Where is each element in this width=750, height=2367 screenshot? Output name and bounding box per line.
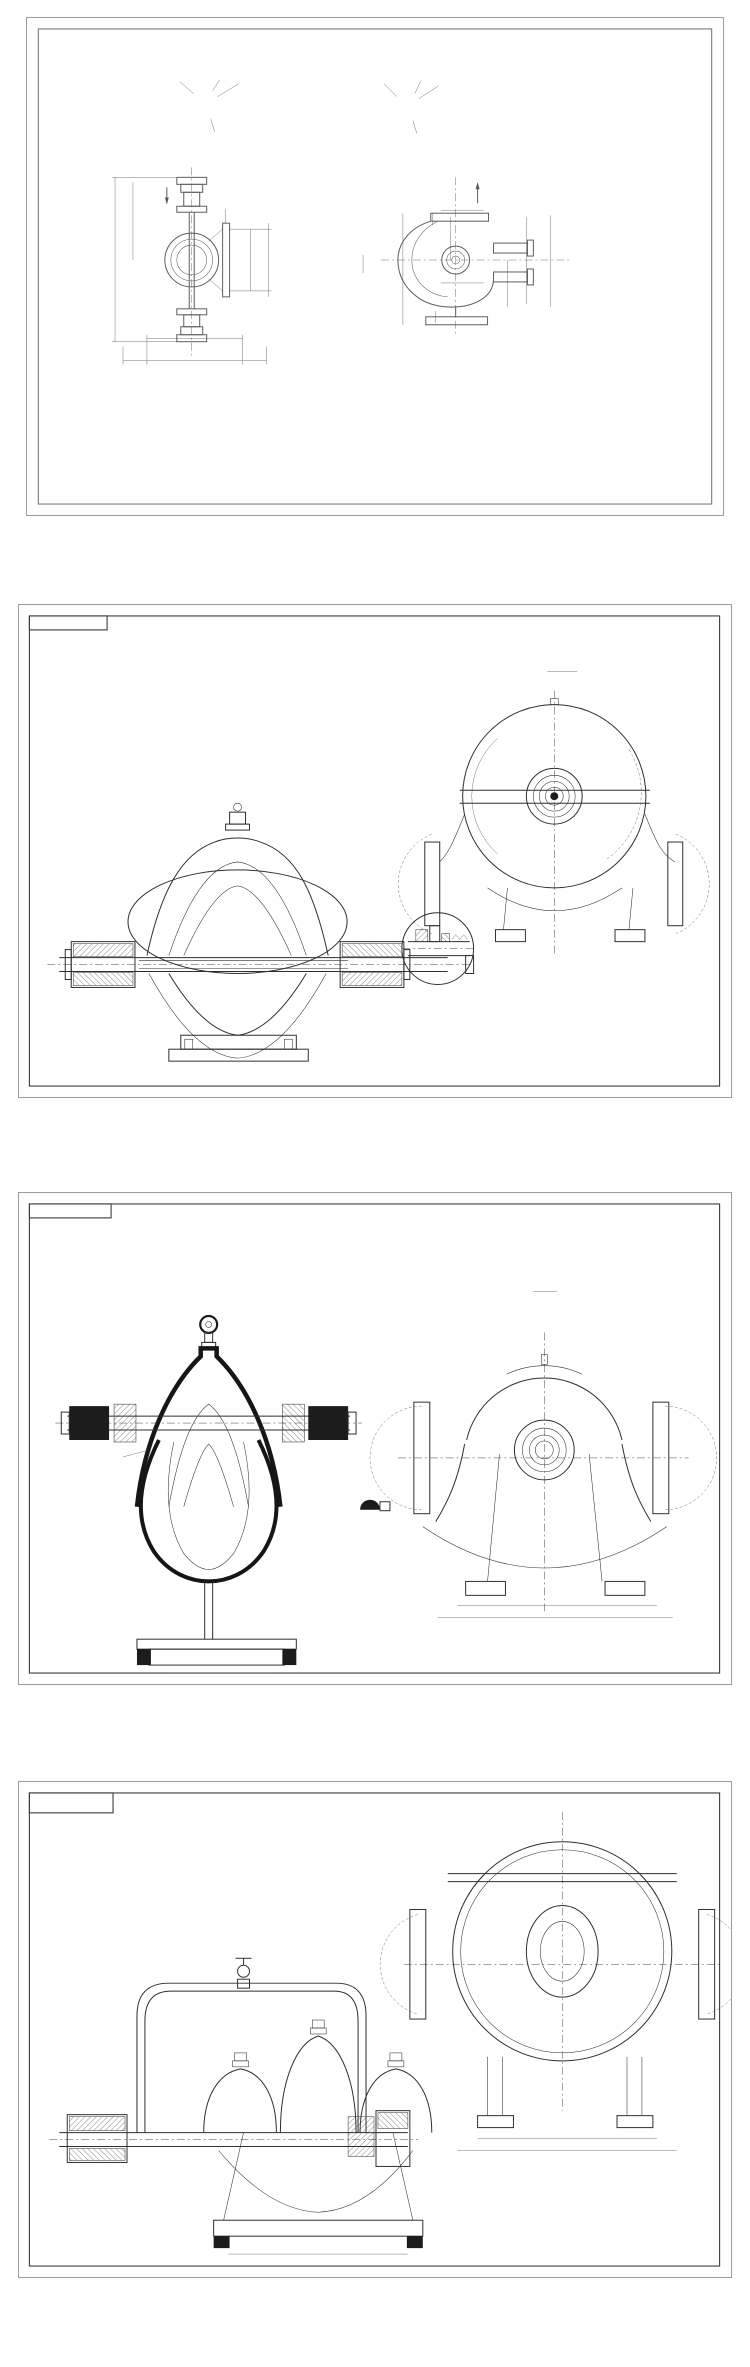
longitudinal-section-view: [55, 1316, 362, 1673]
page: [0, 0, 750, 2367]
cad-drawing-1200s-85: [27, 18, 723, 515]
drawing-sheet-os800-970[interactable]: [18, 1192, 732, 1685]
front-view: [112, 167, 271, 364]
cad-drawing-os800-970: [19, 1193, 731, 1684]
sheet-inner-frame: [29, 1793, 719, 2266]
sheet-inner-frame: [29, 616, 719, 1086]
cad-drawing-slow800-980: [19, 1782, 731, 2277]
cad-drawing-kqsn450-m6: [19, 605, 731, 1097]
longitudinal-section-view: [49, 1958, 431, 2254]
drawing-sheet-1200s-85[interactable]: [26, 17, 724, 516]
drawing-sheet-kqsn450-m6[interactable]: [18, 604, 732, 1098]
front-view: [370, 1292, 717, 1618]
seal-detail-view: [402, 913, 474, 985]
outlet-flange-view: [384, 81, 439, 134]
sheet-inner-frame: [38, 29, 711, 504]
sheet-code-box: [29, 1793, 113, 1813]
longitudinal-section-view: [47, 803, 473, 1061]
inlet-flange-view: [180, 80, 239, 132]
sheet-code-box: [29, 616, 107, 630]
front-view: [380, 1812, 731, 2151]
p-p-detail-view: [360, 1500, 390, 1511]
plan-view: [363, 177, 570, 336]
drawing-sheet-slow800-980[interactable]: [18, 1781, 732, 2278]
sheet-code-box: [29, 1204, 111, 1218]
